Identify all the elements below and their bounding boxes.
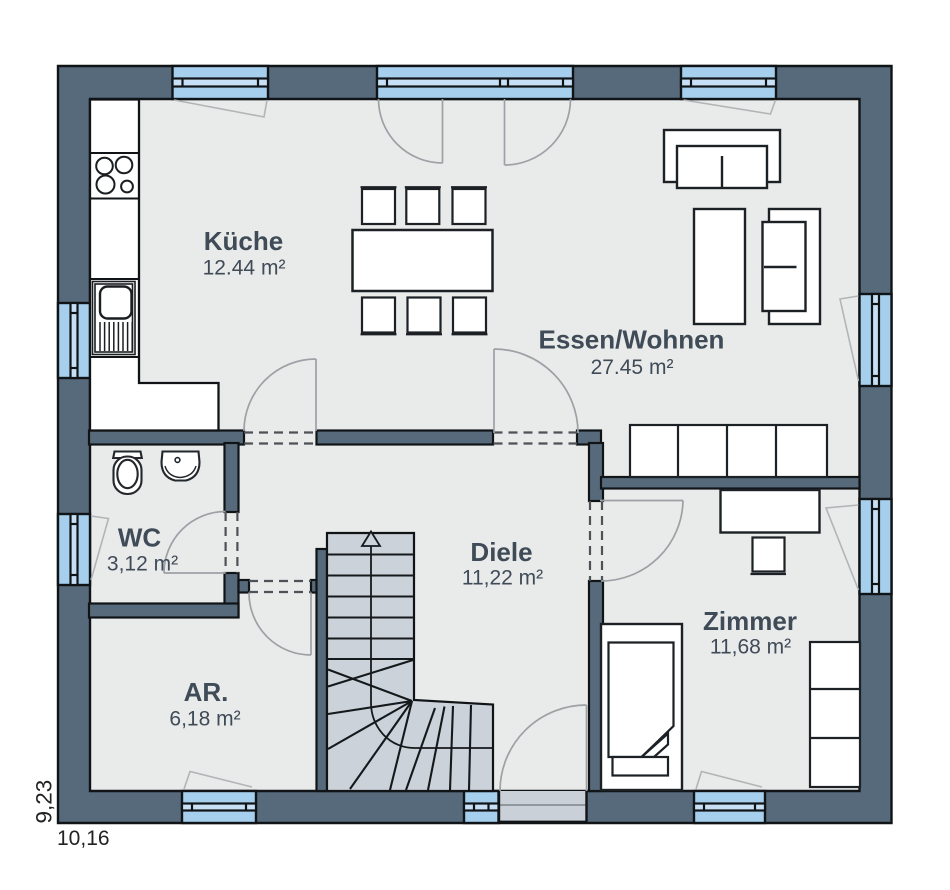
svg-text:9,23: 9,23 <box>32 780 57 824</box>
svg-text:11,22 m²: 11,22 m² <box>462 567 543 590</box>
svg-text:6,18 m²: 6,18 m² <box>169 708 240 731</box>
svg-text:Zimmer: Zimmer <box>703 606 797 636</box>
svg-text:AR.: AR. <box>184 677 229 707</box>
svg-text:Küche: Küche <box>204 226 283 256</box>
svg-text:WC: WC <box>118 523 162 553</box>
svg-text:Diele: Diele <box>470 537 532 567</box>
svg-text:11,68 m²: 11,68 m² <box>710 636 791 659</box>
svg-text:27.45 m²: 27.45 m² <box>591 356 674 379</box>
svg-text:Essen/Wohnen: Essen/Wohnen <box>539 325 725 355</box>
svg-text:12.44 m²: 12.44 m² <box>203 257 286 280</box>
svg-text:10,16: 10,16 <box>57 827 110 850</box>
svg-text:3,12 m²: 3,12 m² <box>107 553 178 576</box>
